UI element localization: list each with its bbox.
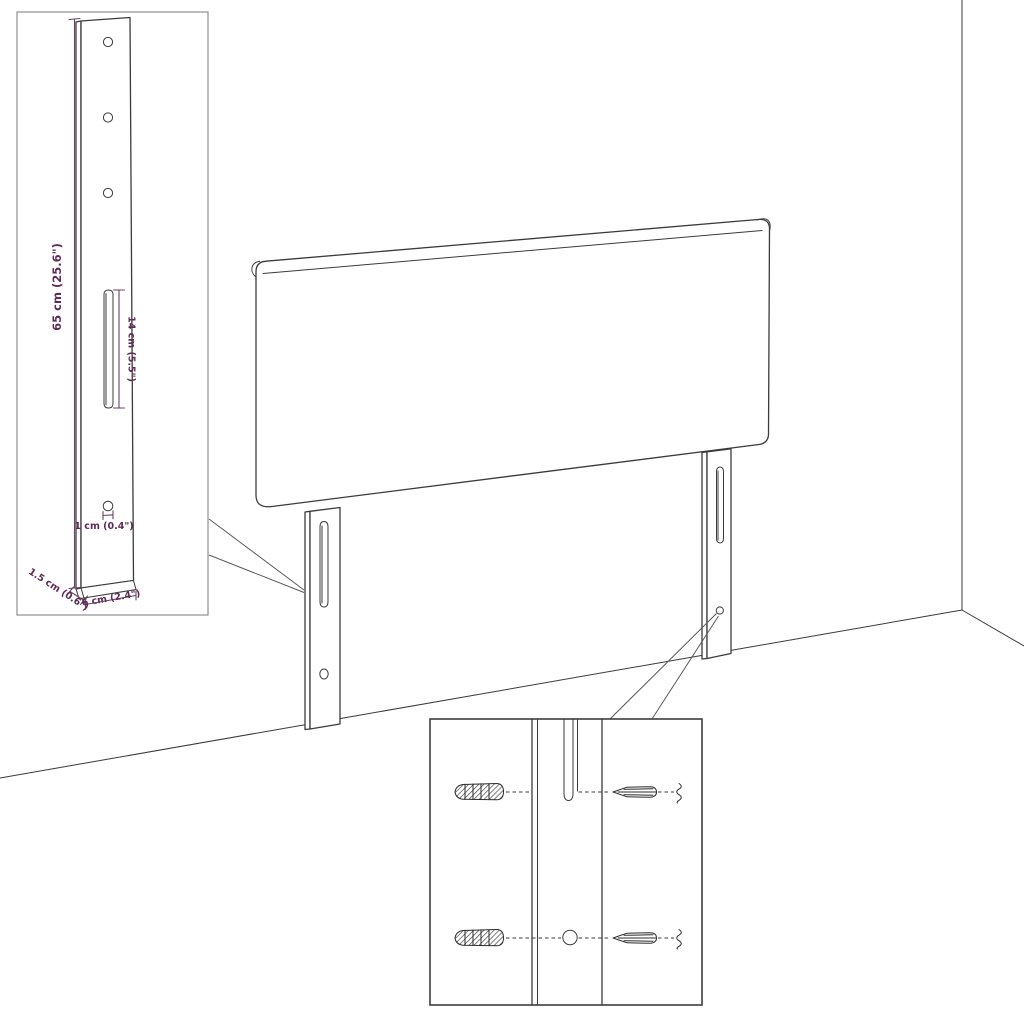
diagram-canvas: 65 cm (25.6") 14 cm (5.5") 1 cm (0.4") 1… (0, 0, 1024, 1024)
headboard-diagram-svg: 65 cm (25.6") 14 cm (5.5") 1 cm (0.4") 1… (0, 0, 1024, 1024)
headboard-panel (252, 219, 770, 507)
right-leg-side-face (702, 452, 707, 659)
slot-dimension-label: 14 cm (5.5") (126, 316, 137, 382)
floor-line-left (0, 725, 305, 778)
inset-leg-bracket (76, 18, 136, 599)
left-inset-callout-lines (209, 519, 304, 593)
left-leg-front-face (310, 508, 340, 730)
left-mounting-leg (305, 508, 340, 730)
right-mounting-leg (702, 449, 731, 659)
floor-line-right (962, 610, 1024, 646)
left-leg-side-face (305, 511, 310, 729)
height-dimension-label: 65 cm (25.6") (50, 243, 64, 331)
bracket-front-face (81, 18, 134, 589)
floor-line-at-corner (731, 610, 962, 650)
hole-dimension-label: 1 cm (0.4") (74, 521, 133, 532)
mounting-inset-border (430, 719, 702, 1005)
right-leg-front-face (707, 449, 731, 659)
bracket-side-face (76, 21, 81, 589)
mounting-hardware-inset (430, 719, 702, 1005)
leg-dimension-inset: 65 cm (25.6") 14 cm (5.5") 1 cm (0.4") 1… (17, 12, 208, 615)
floor-line-middle (340, 655, 702, 718)
